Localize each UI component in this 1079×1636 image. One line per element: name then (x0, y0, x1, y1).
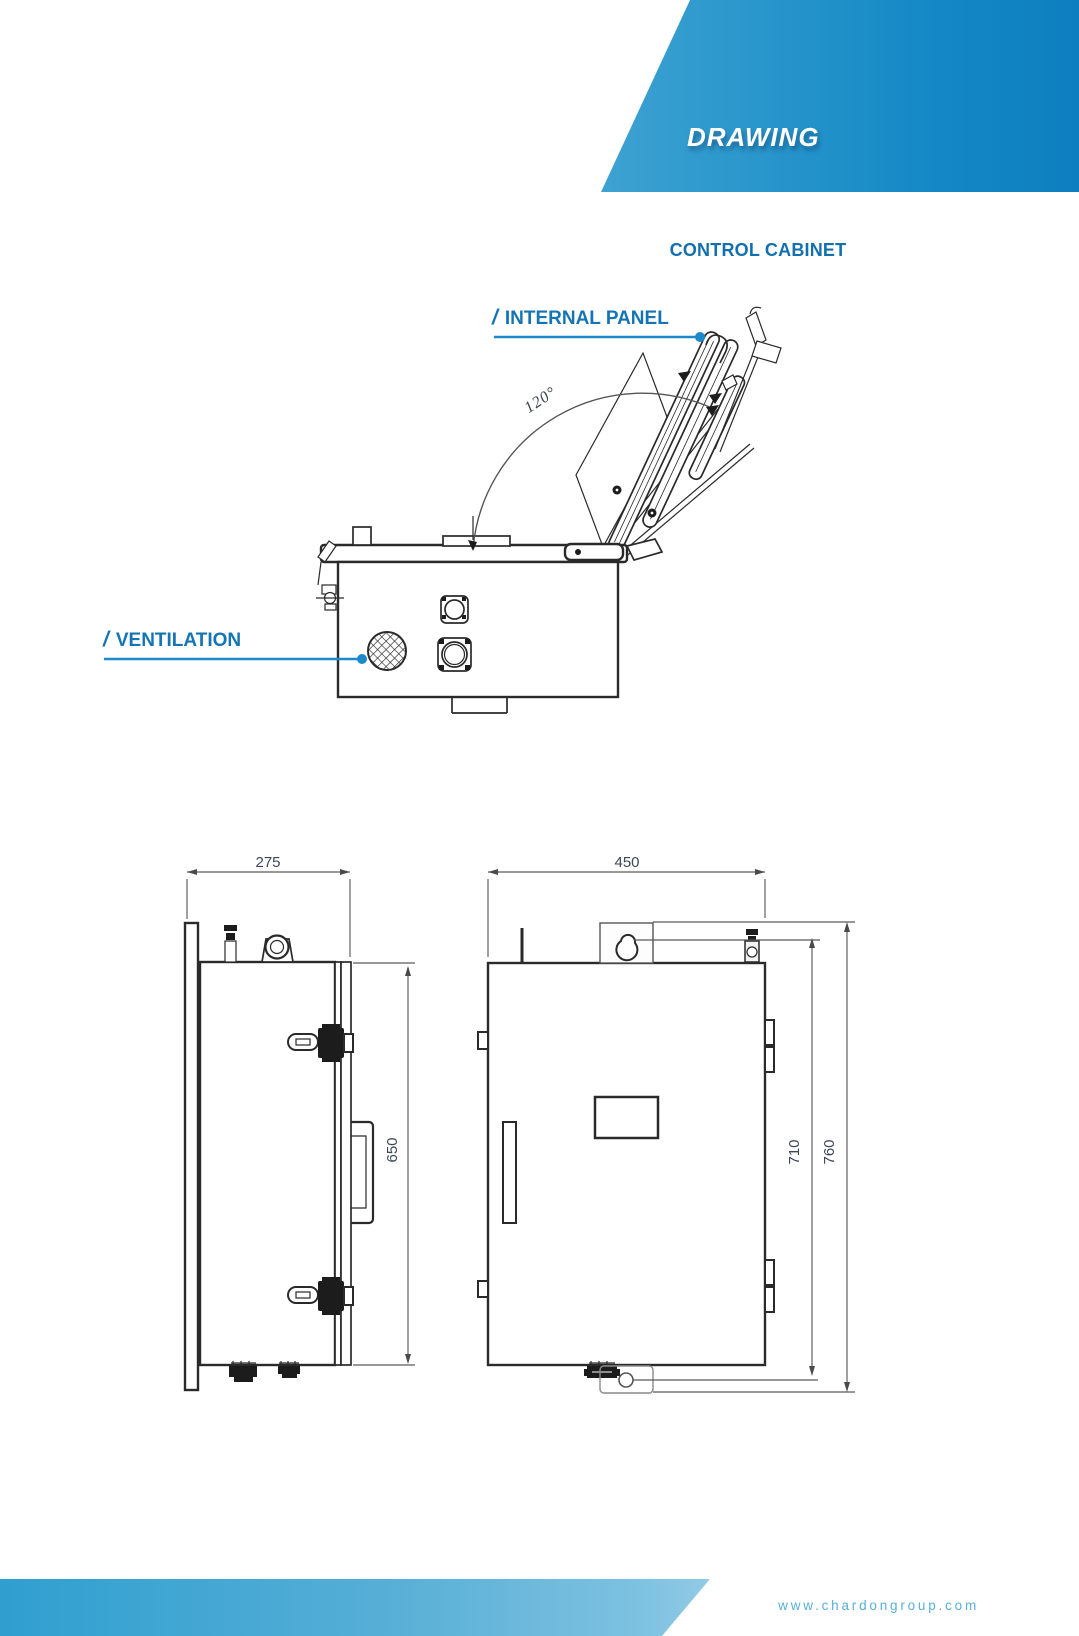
lifting-eye (262, 936, 293, 963)
side-body (200, 962, 335, 1365)
dim-inner-height-label: 710 (786, 1139, 803, 1164)
hinge-bracket (627, 539, 662, 560)
left-bracket (478, 1281, 488, 1297)
angle-label: 120° (521, 384, 559, 417)
top-bracket (746, 312, 766, 346)
dim-total-height-label: 760 (821, 1139, 838, 1164)
internal-panel-callout: /INTERNAL PANEL (492, 306, 669, 330)
leader-dot-icon (695, 332, 705, 342)
catalog-page: DRAWING CONTROL CABINET (0, 0, 1079, 1636)
slash-icon: / (492, 306, 498, 329)
footer-url: www.chardongroup.com (679, 1598, 979, 1613)
upper-gland (441, 596, 468, 623)
dim-front-width-label: 450 (614, 854, 639, 871)
right-hinge-upper (765, 1020, 774, 1072)
side-view-figure (185, 923, 373, 1390)
internal-panel-label: INTERNAL PANEL (505, 308, 669, 329)
cabinet-body (338, 562, 618, 697)
lower-gland (438, 638, 471, 671)
technical-drawing-svg: 120° (0, 0, 1079, 1636)
dim-side-height-label: 650 (384, 1137, 401, 1162)
hinge-knuckle (565, 544, 623, 560)
top-bolt (745, 929, 759, 962)
leader-dot-icon (357, 654, 367, 664)
hinge-pin (575, 549, 581, 555)
left-bracket (478, 1032, 488, 1049)
ventilation-grille-icon (368, 632, 406, 670)
door-handle (351, 1122, 373, 1223)
ventilation-label: VENTILATION (116, 630, 241, 651)
slash-icon: / (103, 628, 109, 651)
ventilation-callout: /VENTILATION (103, 628, 241, 652)
dim-side-width-label: 275 (255, 854, 280, 871)
cabinet-foot (452, 697, 507, 713)
front-body (488, 963, 765, 1365)
right-hinge-lower (765, 1260, 774, 1312)
nameplate (595, 1097, 658, 1138)
front-view-figure (478, 923, 774, 1393)
lid-top-strip (443, 536, 510, 546)
lid-top-tab (353, 527, 371, 545)
top-bolt (224, 925, 237, 962)
bottom-gland (584, 1361, 620, 1378)
door-slot (503, 1122, 516, 1223)
keyhole-bracket (600, 923, 653, 963)
bottom-gland (278, 1361, 300, 1378)
mounting-plate (185, 923, 198, 1390)
open-cabinet-figure: 120° (104, 307, 781, 713)
